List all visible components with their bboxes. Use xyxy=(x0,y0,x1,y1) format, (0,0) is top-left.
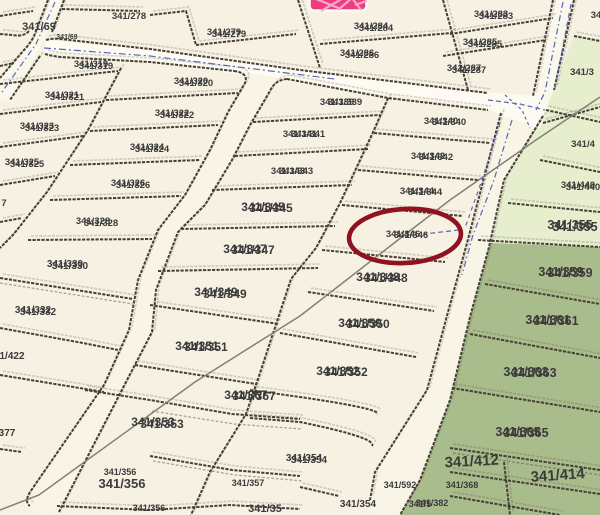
svg-text:341/344: 341/344 xyxy=(400,186,435,197)
svg-text:341/343: 341/343 xyxy=(271,166,305,177)
svg-text:341/355: 341/355 xyxy=(547,218,592,232)
svg-text:341/340: 341/340 xyxy=(424,116,458,127)
svg-text:341/592: 341/592 xyxy=(384,480,417,490)
svg-text:341/4: 341/4 xyxy=(571,139,595,150)
svg-text:341/361: 341/361 xyxy=(525,313,570,327)
svg-text:341/3: 341/3 xyxy=(570,67,594,78)
svg-text:7: 7 xyxy=(1,198,6,209)
svg-text:341/285: 341/285 xyxy=(463,37,498,48)
svg-text:341/359: 341/359 xyxy=(538,265,583,279)
svg-text:34: 34 xyxy=(591,10,600,21)
svg-text:341/356: 341/356 xyxy=(133,503,166,513)
svg-text:341/356: 341/356 xyxy=(99,476,146,491)
svg-text:341/323: 341/323 xyxy=(20,121,54,132)
svg-text:341/348: 341/348 xyxy=(356,270,400,284)
svg-text:341/322: 341/322 xyxy=(155,108,189,119)
svg-text:341/350: 341/350 xyxy=(338,316,382,330)
svg-text:341/69: 341/69 xyxy=(22,21,56,33)
svg-text:341/354: 341/354 xyxy=(340,499,377,510)
svg-text:341/349: 341/349 xyxy=(194,285,238,299)
svg-text:341/278: 341/278 xyxy=(112,11,146,22)
svg-text:341/325: 341/325 xyxy=(5,157,40,168)
svg-text:341/320: 341/320 xyxy=(174,76,208,87)
svg-text:341/328: 341/328 xyxy=(76,216,110,227)
svg-text:341/284: 341/284 xyxy=(354,21,389,32)
svg-text:341/352: 341/352 xyxy=(316,364,360,378)
svg-text:341/35: 341/35 xyxy=(248,503,282,515)
svg-text:341/287: 341/287 xyxy=(447,63,481,74)
svg-text:341/286: 341/286 xyxy=(340,48,374,59)
svg-text:377: 377 xyxy=(0,428,16,439)
svg-text:341/367: 341/367 xyxy=(224,388,268,402)
svg-text:341/351: 341/351 xyxy=(175,339,219,353)
svg-text:341/412: 341/412 xyxy=(444,452,499,472)
svg-text:341/326: 341/326 xyxy=(111,178,145,189)
svg-text:341/346: 341/346 xyxy=(386,229,420,240)
svg-text:341/279: 341/279 xyxy=(207,27,241,38)
svg-text:341/357: 341/357 xyxy=(232,478,265,488)
svg-text:341/283: 341/283 xyxy=(474,9,508,20)
svg-text:341/365: 341/365 xyxy=(495,425,540,439)
svg-text:341/330: 341/330 xyxy=(47,259,84,270)
svg-text:341/5: 341/5 xyxy=(409,499,432,509)
svg-text:341/319: 341/319 xyxy=(74,59,108,70)
svg-text:341/69: 341/69 xyxy=(56,34,78,41)
svg-text:341/368: 341/368 xyxy=(446,480,479,490)
svg-text:341/440: 341/440 xyxy=(561,180,595,191)
svg-text:341/345: 341/345 xyxy=(241,200,285,214)
svg-text:341/341: 341/341 xyxy=(283,129,318,140)
svg-text:1/422: 1/422 xyxy=(0,351,25,362)
svg-text:341/339: 341/339 xyxy=(320,97,354,108)
svg-text:341/324: 341/324 xyxy=(130,142,165,153)
svg-text:341/347: 341/347 xyxy=(223,242,267,256)
svg-text:341/363: 341/363 xyxy=(503,365,548,379)
svg-text:341/342: 341/342 xyxy=(411,151,445,162)
svg-text:341/332: 341/332 xyxy=(15,305,52,316)
svg-text:341/354: 341/354 xyxy=(286,453,323,464)
svg-text:341/321: 341/321 xyxy=(45,90,80,101)
svg-text:341/353: 341/353 xyxy=(131,415,175,429)
